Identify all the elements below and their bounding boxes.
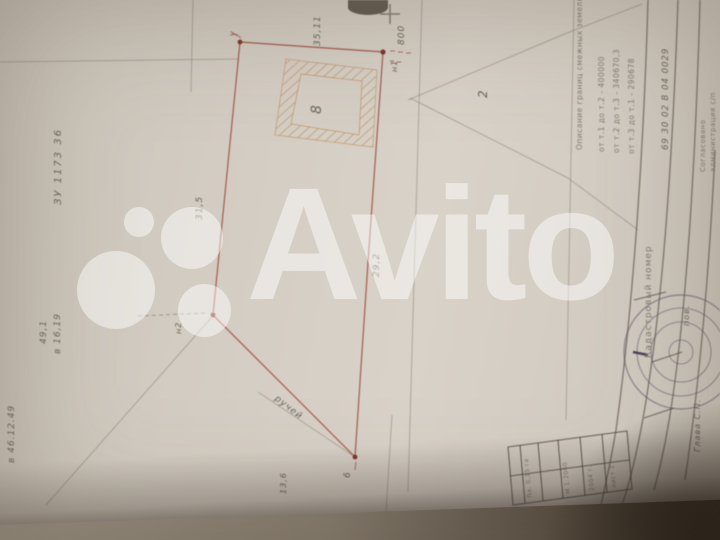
vertex-label-left: н2: [175, 322, 183, 334]
margin-note-bottom-left: в 46.12.49: [8, 405, 17, 463]
right-edge-text-b: администрация с/п: [710, 92, 717, 172]
cadastral-number-label: Кадастровый номер: [645, 245, 654, 358]
signature-line: Глава С.П.: [694, 399, 702, 452]
length-label-top: 35,11: [314, 15, 323, 46]
round-stamp: [624, 295, 720, 409]
vertex-point: [353, 455, 358, 460]
vertex-point: [380, 49, 385, 54]
margin-note-left-mid-b: в 16,19: [54, 313, 63, 354]
vertex-label-bottom: 6: [344, 471, 353, 478]
plan-sheet: 35,11 31,5 29,2 800 8 2 ручей у н1 н2 6 …: [0, 0, 720, 540]
legend-line-3: от т.3 до т.1 - 290678: [628, 58, 636, 154]
margin-note-left-mid-a: 49,1: [40, 320, 49, 344]
vertex-point: [211, 313, 216, 318]
photo-of-survey-plan: 35,11 31,5 29,2 800 8 2 ручей у н1 н2 6 …: [0, 0, 720, 540]
adjacent-parcel-mark: 2: [477, 89, 489, 98]
cross-elevation-label: 800: [398, 25, 407, 45]
right-edge-text-a: Согласовано: [700, 119, 707, 172]
dashed-tie-line: [138, 313, 206, 316]
parcel-number-mark: 8: [310, 104, 324, 114]
length-label-left: 31,5: [196, 196, 205, 220]
stamp-scribble: пов.: [683, 305, 691, 326]
length-label-right: 29,2: [373, 253, 382, 277]
cadastral-quarter-number: 69 30 02 В 04 0029: [662, 48, 671, 150]
legend-line-2: от т.2 до т.3 - 340670,3: [613, 49, 621, 153]
legend-title: Описание границ смежных земель: [576, 0, 584, 150]
ink-smudge: [348, 0, 388, 15]
margin-note-left-top: ЗУ 1173 36: [54, 128, 64, 205]
vertex-point: [238, 40, 243, 45]
legend-line-1: от т.1 до т.2 - 400000: [598, 56, 606, 152]
vertex-label-top-left: у: [229, 30, 237, 36]
note-near-bottom: 13,6: [280, 472, 288, 494]
vertex-label-top-right: н1: [391, 60, 399, 72]
hatched-structure: [275, 59, 377, 147]
